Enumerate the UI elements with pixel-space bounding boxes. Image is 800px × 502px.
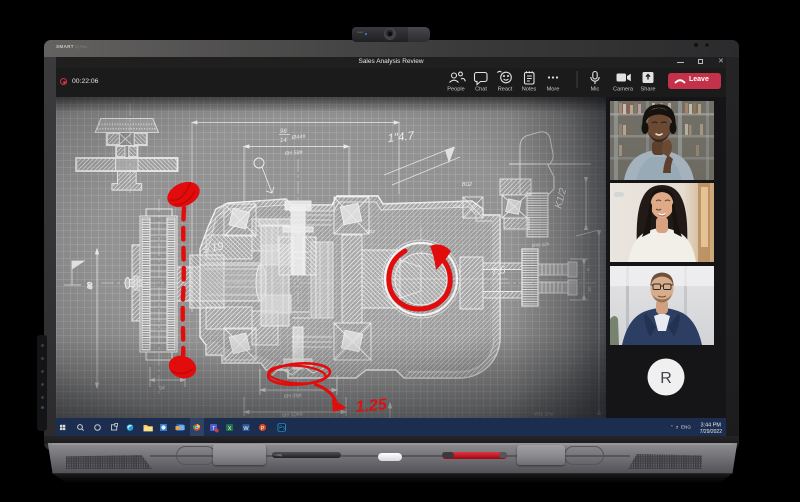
svg-text:More: More (547, 87, 560, 93)
svg-text:⌃ ♬ ENG: ⌃ ♬ ENG (670, 425, 691, 430)
svg-text:Ps: Ps (279, 426, 285, 432)
svg-text:X: X (228, 426, 232, 432)
svg-text:7/29/2022: 7/29/2022 (700, 429, 722, 435)
svg-text:W: W (243, 426, 249, 432)
svg-text:3:44 PM: 3:44 PM (701, 423, 722, 429)
svg-text:Share: Share (641, 87, 656, 93)
svg-text:R: R (660, 370, 672, 387)
svg-text:Notes: Notes (522, 87, 537, 93)
svg-text:Mic: Mic (591, 87, 600, 93)
svg-text:Camera: Camera (613, 87, 634, 93)
svg-text:1.25: 1.25 (355, 396, 389, 416)
svg-text:People: People (447, 87, 464, 93)
svg-text:Chat: Chat (475, 87, 487, 93)
svg-text:P: P (261, 426, 265, 432)
svg-text:React: React (498, 87, 513, 93)
